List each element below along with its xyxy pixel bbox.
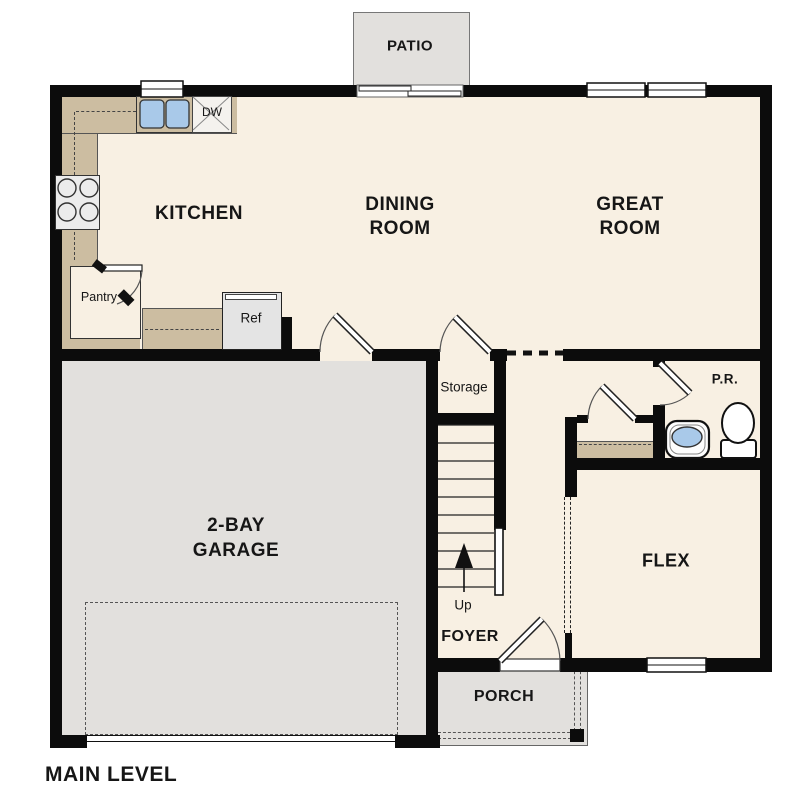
wall-pr-left: [653, 405, 665, 470]
porch-dash-h2: [438, 738, 581, 739]
foyer-label: FOYER: [441, 628, 499, 646]
garage-label-2: GARAGE: [193, 540, 279, 562]
flex-label: FLEX: [642, 551, 690, 572]
wall-garage-right: [426, 349, 438, 745]
kitchen-label: KITCHEN: [155, 203, 243, 225]
kitchen-sink-cabinet: [136, 96, 193, 133]
dishwasher-label: DW: [202, 105, 222, 119]
porch-column: [570, 729, 584, 742]
counter-dash-low: [145, 329, 219, 330]
dining-room-label-1: DINING: [365, 194, 435, 216]
storage-label: Storage: [440, 380, 487, 395]
wall-closet-top-a: [577, 415, 588, 423]
range-icon: [55, 175, 100, 230]
flex-opening-dash-2: [570, 497, 571, 633]
pantry-label: Pantry: [81, 290, 117, 304]
porch-dash-v1: [574, 666, 575, 731]
counter-dash-top: [76, 111, 136, 112]
wall-pr-jamb: [653, 361, 665, 367]
powder-room-label: P.R.: [712, 372, 739, 387]
wall-foyer-flex-stub: [565, 633, 572, 663]
dining-room-label-2: ROOM: [369, 218, 430, 240]
wall-mid-d: [563, 349, 772, 361]
wall-right: [760, 85, 772, 672]
porch-dash-v2: [580, 666, 581, 731]
porch-dash-h1: [438, 732, 575, 733]
patio-label: PATIO: [387, 38, 433, 55]
porch-label: PORCH: [474, 688, 534, 706]
great-room-label-2: ROOM: [599, 218, 660, 240]
wall-garage-bottom-left: [50, 735, 87, 748]
shelf-dash: [579, 444, 651, 445]
wall-closet-top-b: [635, 415, 653, 423]
wall-foyer-bottom: [426, 658, 500, 672]
great-room-label-1: GREAT: [596, 194, 664, 216]
wall-closet-left: [565, 417, 577, 497]
garage-door-dash: [85, 602, 398, 735]
floor-plan: PATIO KITCHEN DINING ROOM GREAT ROOM Pan…: [0, 0, 810, 810]
plan-title: MAIN LEVEL: [45, 763, 177, 787]
garage-door: [87, 735, 395, 742]
wall-stairs-right: [494, 349, 506, 530]
wall-storage-bottom: [426, 413, 506, 425]
refrigerator-label: Ref: [240, 311, 261, 326]
wall-flex-top: [565, 458, 772, 470]
flex-opening-dash-1: [564, 497, 565, 633]
up-label: Up: [454, 598, 471, 613]
wall-flex-bottom: [572, 658, 772, 672]
garage-label-1: 2-BAY: [207, 515, 265, 537]
